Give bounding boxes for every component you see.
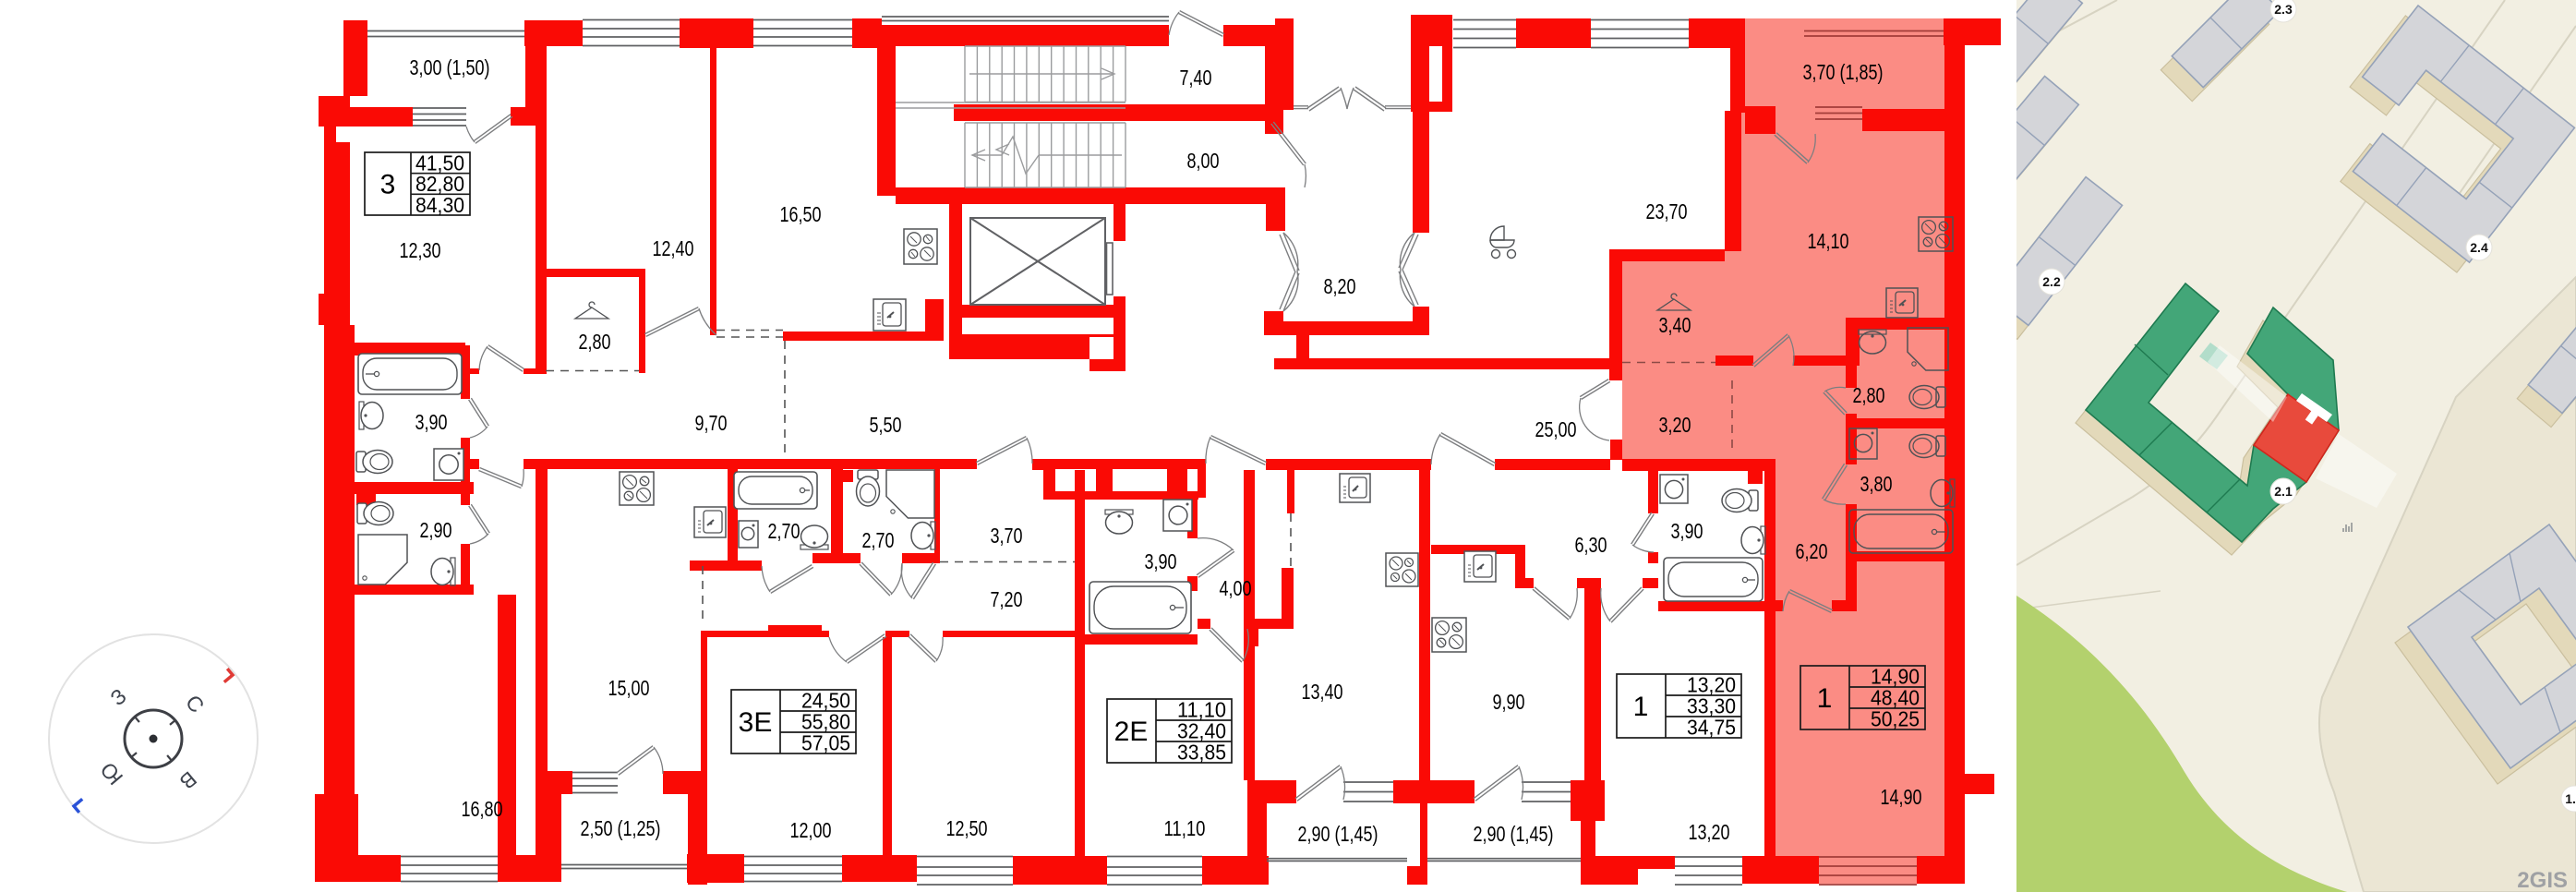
svg-text:2,80: 2,80 [579,330,611,354]
svg-text:6,30: 6,30 [1575,533,1607,557]
svg-text:12,30: 12,30 [400,238,441,262]
svg-text:1: 1 [1817,683,1833,714]
svg-text:5,50: 5,50 [870,413,902,437]
svg-text:8,20: 8,20 [1324,274,1356,298]
svg-text:7,20: 7,20 [991,587,1023,611]
svg-text:9,70: 9,70 [695,411,728,435]
svg-text:2,70: 2,70 [768,519,800,543]
svg-text:4,00: 4,00 [1220,576,1252,600]
svg-text:14,10: 14,10 [1808,229,1849,253]
svg-text:16,80: 16,80 [462,797,503,821]
svg-text:15,00: 15,00 [608,676,650,700]
svg-text:2,90: 2,90 [420,518,452,542]
svg-text:3,70: 3,70 [991,524,1023,548]
svg-text:14,90: 14,90 [1881,785,1922,809]
svg-text:9,90: 9,90 [1493,690,1525,714]
svg-text:12,40: 12,40 [653,236,694,260]
svg-text:2Е: 2Е [1114,717,1149,747]
svg-text:2.3: 2.3 [2274,2,2293,17]
svg-text:1: 1 [1633,692,1649,722]
svg-text:84,30: 84,30 [415,193,464,217]
svg-text:3,90: 3,90 [415,410,448,434]
svg-text:13,40: 13,40 [1302,680,1343,704]
svg-text:57,05: 57,05 [801,731,850,755]
svg-text:8,00: 8,00 [1187,149,1220,173]
svg-text:12,50: 12,50 [946,816,988,840]
svg-text:2GIS: 2GIS [2517,868,2568,892]
svg-text:11,10: 11,10 [1164,816,1206,840]
svg-text:2.1: 2.1 [2274,484,2293,499]
svg-text:3Е: 3Е [739,707,773,738]
svg-text:2,80: 2,80 [1853,383,1885,407]
svg-text:3,00 (1,50): 3,00 (1,50) [410,55,490,79]
svg-text:16,50: 16,50 [780,202,822,226]
svg-text:23,70: 23,70 [1646,199,1688,223]
svg-text:12,00: 12,00 [790,818,832,842]
svg-text:2,90 (1,45): 2,90 (1,45) [1298,822,1378,846]
svg-text:2,70: 2,70 [862,528,895,552]
svg-text:2,50 (1,25): 2,50 (1,25) [581,816,661,840]
svg-text:2,90 (1,45): 2,90 (1,45) [1474,822,1554,846]
svg-text:3,40: 3,40 [1659,313,1691,337]
svg-text:3,90: 3,90 [1671,519,1703,543]
svg-text:2.2: 2.2 [2042,274,2061,289]
svg-text:2.4: 2.4 [2470,240,2488,255]
svg-text:34,75: 34,75 [1687,716,1736,740]
svg-text:7,40: 7,40 [1180,66,1212,90]
svg-text:3: 3 [380,170,396,200]
svg-text:1.4: 1.4 [2565,791,2576,806]
svg-text:33,85: 33,85 [1177,741,1226,765]
svg-text:3,20: 3,20 [1659,413,1691,437]
svg-text:3,80: 3,80 [1860,472,1893,496]
svg-text:3,70 (1,85): 3,70 (1,85) [1803,60,1884,84]
svg-text:50,25: 50,25 [1871,707,1920,731]
svg-text:6,20: 6,20 [1796,539,1828,563]
svg-text:25,00: 25,00 [1535,417,1577,441]
svg-text:13,20: 13,20 [1689,820,1730,844]
svg-text:3,90: 3,90 [1145,549,1177,573]
